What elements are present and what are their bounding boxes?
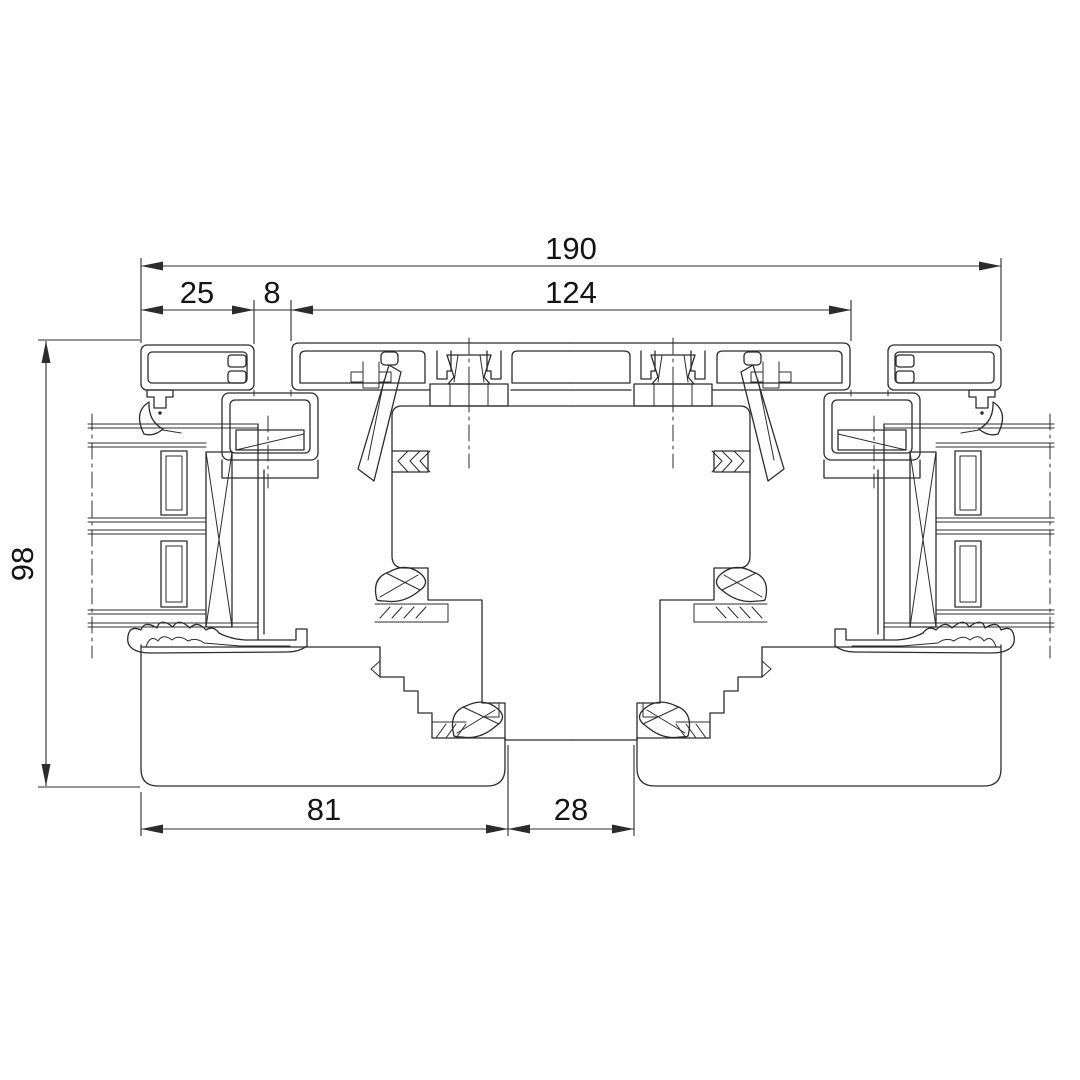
dim-overall-width-label: 190 <box>545 231 597 266</box>
glazing-bead-profile <box>222 393 318 488</box>
fir-gasket <box>392 451 430 472</box>
left-half-profiles <box>88 338 571 786</box>
dim-center-profile-width-label: 124 <box>545 275 597 310</box>
screw-boss-clip <box>430 338 508 468</box>
dim-left-cap-width-label: 25 <box>180 275 214 310</box>
profile-section-drawing: 190 25 8 124 98 81 28 <box>0 0 1080 1080</box>
dim-sill-center-width-label: 28 <box>554 792 588 827</box>
dimension-arrowheads <box>42 262 1002 834</box>
mid-bowtie-gasket <box>376 567 426 601</box>
end-cap-profile <box>141 345 291 396</box>
profile-geometry <box>88 338 1054 786</box>
dim-joint-gap-label: 8 <box>263 275 280 310</box>
right-half-profiles <box>571 338 1054 786</box>
dimension-labels: 190 25 8 124 98 81 28 <box>5 231 597 827</box>
dim-frame-height-label: 98 <box>5 547 40 581</box>
top-cover-profile <box>292 343 571 390</box>
dim-sill-left-width-label: 81 <box>307 792 341 827</box>
technical-drawing-page: 190 25 8 124 98 81 28 <box>0 0 1080 1080</box>
bottom-frame-profile <box>141 604 505 786</box>
